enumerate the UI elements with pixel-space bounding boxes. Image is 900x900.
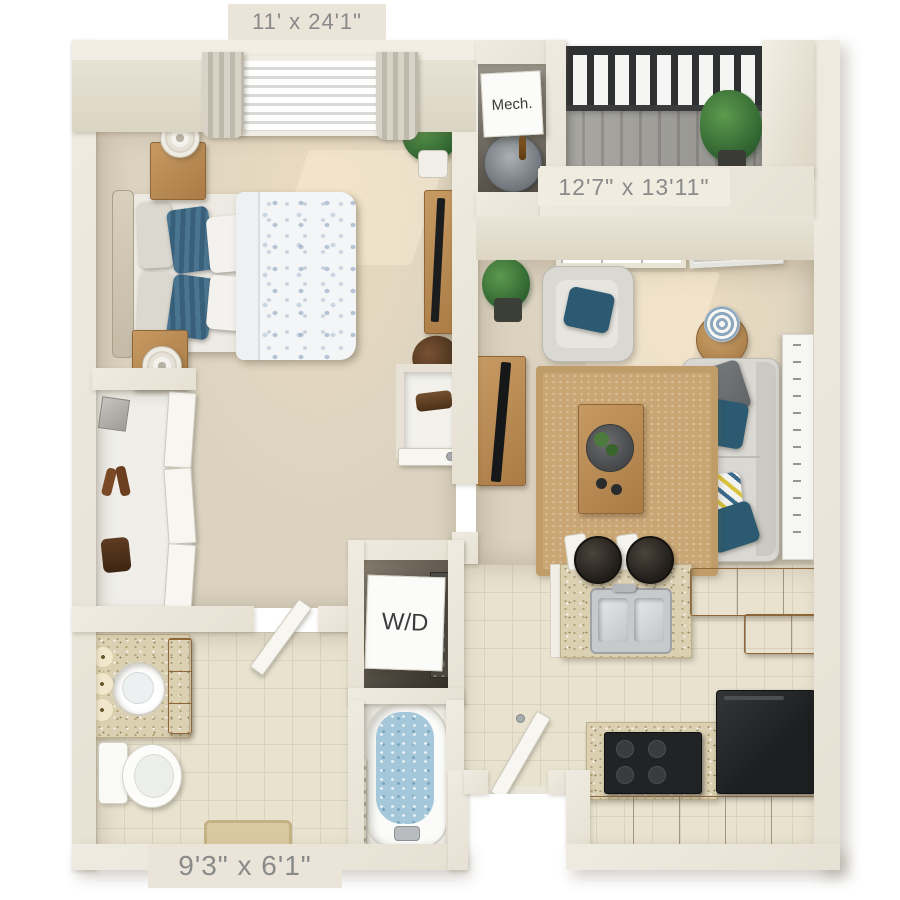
vanity-drawers	[168, 638, 192, 734]
tray-plant-1	[594, 432, 609, 447]
sink-basin-left	[598, 598, 628, 642]
entry-door-knob	[516, 714, 525, 723]
divider-bedroom-living	[452, 132, 478, 484]
entry-exterior-notch	[468, 794, 568, 870]
kitchen-lower-left-wall	[566, 770, 590, 850]
living-bush-pot	[494, 298, 522, 322]
burner-2	[648, 740, 666, 758]
living-table-lamp	[704, 306, 740, 342]
tub-faucet	[394, 826, 420, 841]
tub-left-wall	[348, 700, 364, 848]
tub-water	[376, 712, 434, 824]
laundry-placard: W/D	[364, 575, 445, 672]
upper-cabinets	[690, 568, 816, 616]
sofa-back-cushions	[756, 362, 776, 556]
duvet-fold	[236, 192, 260, 360]
toilet-seat	[134, 754, 174, 798]
closet-top-wall	[92, 368, 196, 390]
refrigerator-handle	[724, 696, 784, 700]
water-heater-pipe	[519, 136, 526, 160]
closet-bifold-panel-3	[164, 543, 196, 609]
burner-3	[616, 766, 634, 784]
laundry-right-wall	[448, 540, 464, 704]
bar-stool-left	[574, 536, 622, 584]
vanity-sink-bowl	[122, 672, 154, 704]
outer-wall-right	[814, 40, 840, 870]
curtain-right	[376, 52, 418, 140]
laundry-placard-label: W/D	[381, 608, 429, 638]
bedroom-plant-pot	[418, 150, 448, 178]
tray-plant-2	[606, 444, 618, 456]
bedroom-dimensions-label: 11' x 24'1"	[228, 4, 386, 40]
living-room-dimensions-text: 12'7" x 13'11"	[558, 174, 709, 201]
headboard	[112, 190, 134, 358]
entry-notch-top-left	[464, 770, 488, 794]
sink-basin-right	[634, 598, 664, 642]
laundry-top-wall	[348, 540, 464, 560]
laundry-left-wall	[348, 540, 364, 704]
closet-bifold-panel-2	[163, 467, 196, 545]
table-candle-2	[611, 484, 622, 495]
bedroom-window	[238, 56, 394, 136]
bathroom-dimensions-text: 9'3" x 6'1"	[178, 850, 311, 882]
living-room-dimensions-label: 12'7" x 13'11"	[538, 168, 730, 206]
closet-storage-box	[98, 396, 130, 432]
bedroom-dimensions-text: 11' x 24'1"	[252, 9, 362, 35]
sink-faucet	[612, 584, 636, 592]
outer-wall-left	[72, 40, 96, 870]
table-candle-1	[596, 478, 607, 489]
curtain-left	[202, 52, 244, 138]
balcony-right-wall	[762, 40, 814, 176]
floor-plan-scene: W/D Mech.	[0, 0, 900, 900]
refrigerator	[716, 690, 816, 794]
water-heater	[484, 134, 542, 192]
wall-art-marks	[793, 344, 801, 548]
bottom-wall-kitchen	[566, 844, 840, 870]
upper-cabinets-corner	[744, 614, 816, 654]
base-cabinets	[586, 796, 816, 846]
living-top-wall-face	[476, 216, 814, 260]
mech-placard: Mech.	[480, 70, 543, 137]
mech-placard-label: Mech.	[491, 94, 533, 113]
bathroom-top-wall-nub	[318, 606, 352, 632]
closet-bag	[100, 537, 131, 574]
entry-notch-top-right	[548, 770, 568, 794]
bar-stool-right	[626, 536, 674, 584]
burner-4	[648, 766, 666, 784]
closet-bifold-panel-1	[163, 391, 196, 469]
bathroom-dimensions-label: 9'3" x 6'1"	[148, 844, 342, 888]
burner-1	[616, 740, 634, 758]
bathroom-top-wall	[72, 606, 254, 632]
